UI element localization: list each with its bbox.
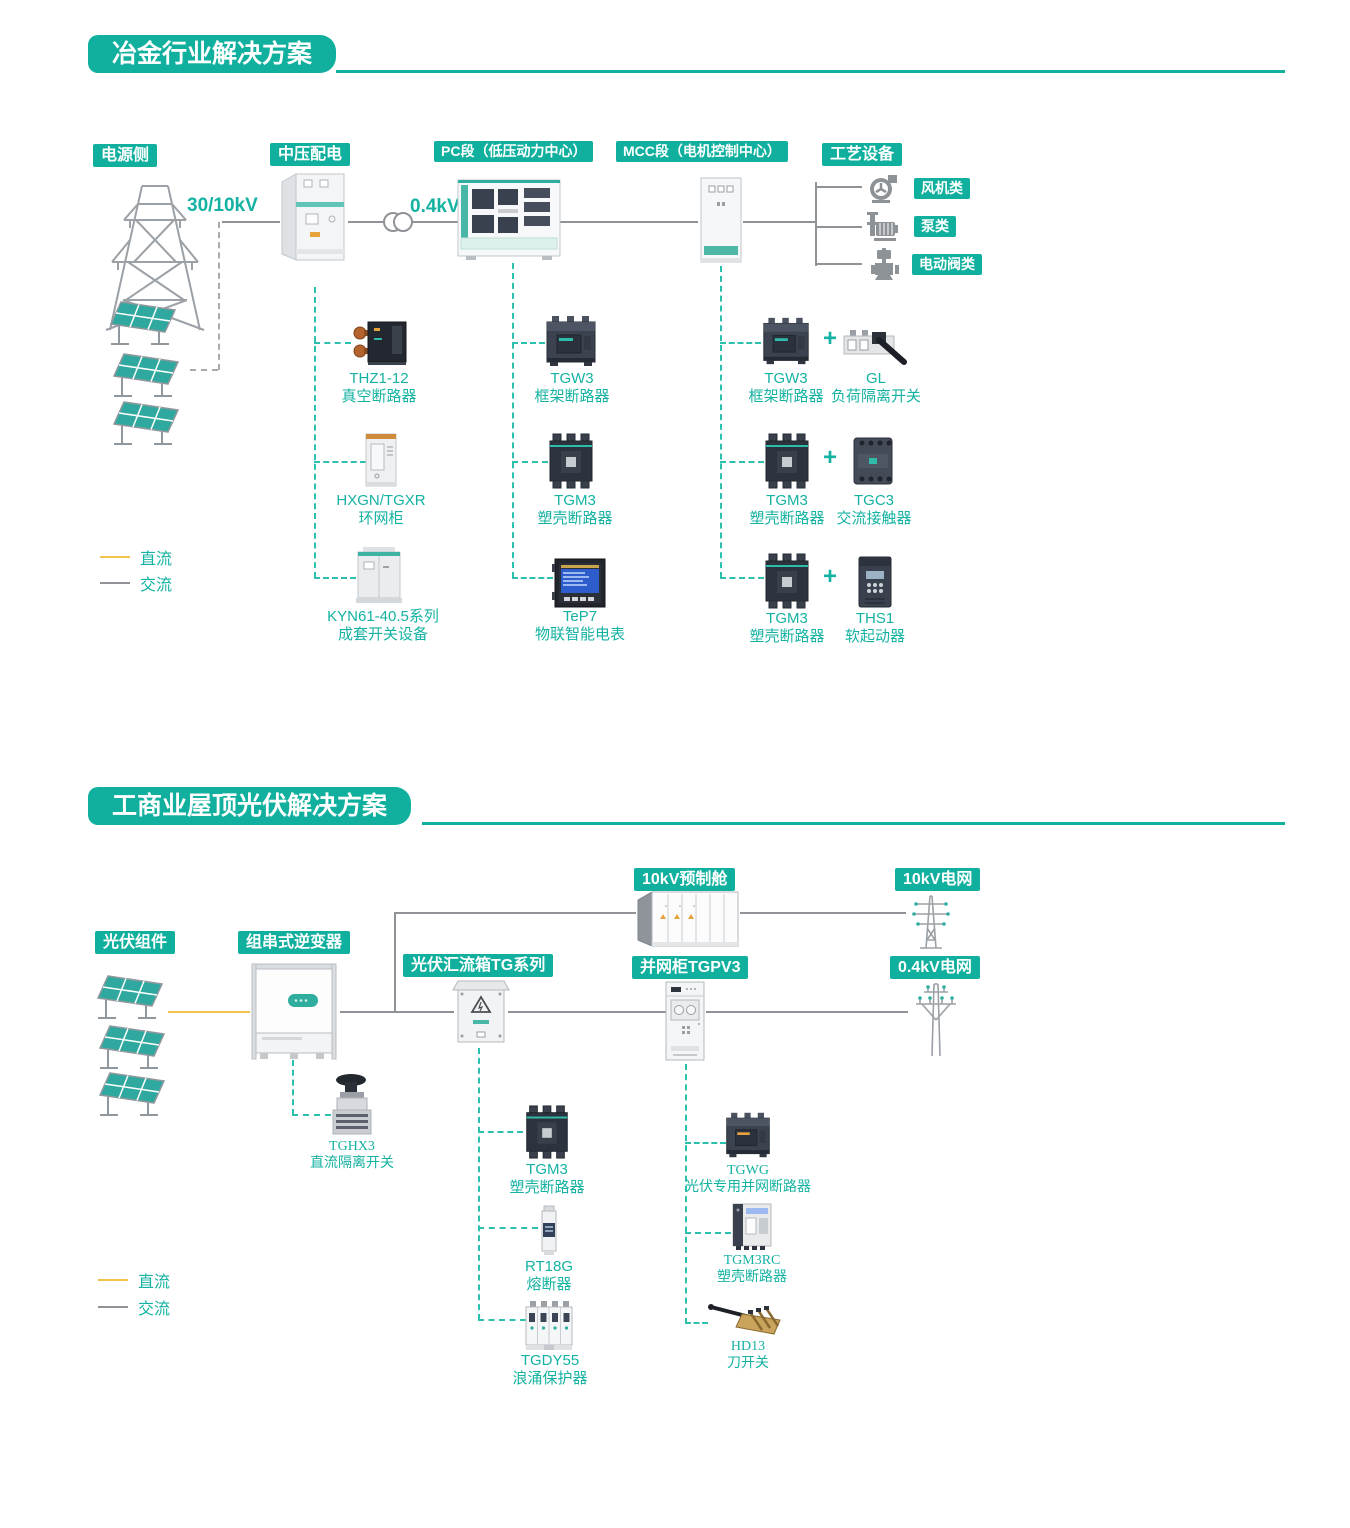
product-name: THS1: [845, 610, 905, 628]
badge-pc-section: PC段（低压动力中心）: [434, 141, 593, 162]
legend-ac: 交流: [98, 1297, 170, 1317]
ac-line: [706, 1011, 908, 1013]
solar-panel-icon: [108, 398, 182, 448]
product-label: KYN61-40.5系列 成套开关设备: [327, 608, 439, 644]
badge-04kv-grid: 0.4kV电网: [890, 956, 980, 979]
legend-dc-label: 直流: [138, 1268, 170, 1292]
pump-icon: [864, 210, 900, 244]
dashed-connector: [478, 1227, 538, 1229]
dashed-connector: [512, 577, 553, 579]
ac-line: [743, 221, 816, 223]
product-name: RT18G: [525, 1258, 573, 1276]
section1-underline: [336, 70, 1285, 73]
legend-ac-label: 交流: [140, 571, 172, 595]
tgc3-contactor-image: [850, 432, 896, 490]
product-desc: 成套开关设备: [327, 626, 439, 644]
dashed-connector: [720, 266, 722, 578]
product-name: TGM3RC: [717, 1252, 787, 1269]
grid-pole-icon: [910, 980, 962, 1060]
gl-switch-image: [842, 318, 908, 368]
product-label: TGW3 框架断路器: [534, 370, 609, 406]
fan-icon: [866, 172, 900, 204]
legend-dc-label: 直流: [140, 545, 172, 569]
product-name: TGM3: [509, 1161, 584, 1179]
load-stub-line: [815, 186, 862, 188]
product-label: RT18G 熔断器: [525, 1258, 573, 1294]
dc-line-swatch: [100, 556, 130, 558]
product-label: TGM3 塑壳断路器: [537, 492, 612, 528]
product-label: TGDY55 浪涌保护器: [512, 1352, 587, 1388]
dashed-connector: [685, 1322, 708, 1324]
tgw3-acb-image: [544, 314, 598, 368]
product-name: TGHX3: [310, 1138, 394, 1155]
legend-dc: 直流: [100, 547, 172, 567]
tgm3-mccb-image: [764, 432, 810, 490]
pc-cabinet-image: [456, 176, 562, 262]
ac-line: [412, 221, 460, 223]
hxgn-image: [364, 430, 398, 488]
product-desc: 软起动器: [845, 628, 905, 646]
product-desc: 直流隔离开关: [310, 1155, 394, 1172]
dashed-connector: [720, 461, 764, 463]
product-desc: 交流接触器: [836, 510, 911, 528]
voltage-label-lv: 0.4kV: [410, 196, 460, 218]
product-label: TGHX3 直流隔离开关: [310, 1138, 394, 1172]
badge-string-inverter: 组串式逆变器: [238, 931, 350, 954]
ac-line: [394, 912, 636, 914]
badge-tgpv3-cabinet: 并网柜TGPV3: [632, 956, 748, 979]
solar-panel-icon: [94, 1069, 168, 1119]
legend-dc: 直流: [98, 1270, 170, 1290]
prefab-cabin-image: [636, 886, 740, 950]
product-label: TGM3 塑壳断路器: [509, 1161, 584, 1197]
dashed-connector: [685, 1142, 726, 1144]
badge-pump-load: 泵类: [914, 216, 956, 237]
product-desc: 塑壳断路器: [717, 1269, 787, 1286]
load-stub-line: [815, 263, 862, 265]
product-desc: 光伏专用并网断路器: [685, 1179, 811, 1196]
mcc-cabinet-image: [697, 174, 745, 266]
dashed-connector: [512, 263, 514, 578]
product-name: KYN61-40.5系列: [327, 608, 439, 626]
product-name: TGW3: [748, 370, 823, 388]
product-desc: 熔断器: [525, 1276, 573, 1294]
product-name: TGM3: [749, 610, 824, 628]
kyn-cabinet-image: [355, 544, 403, 604]
product-label: HD13 刀开关: [727, 1338, 769, 1372]
ac-line: [222, 221, 280, 223]
product-name: HD13: [727, 1338, 769, 1355]
dashed-connector: [314, 287, 316, 578]
product-desc: 真空断路器: [341, 388, 416, 406]
thz1-12-image: [350, 318, 410, 366]
badge-fan-load: 风机类: [914, 178, 970, 199]
dashed-connector: [478, 1048, 480, 1320]
tgw3-acb-image: [761, 314, 811, 368]
product-desc: 塑壳断路器: [509, 1179, 584, 1197]
product-label: THS1 软起动器: [845, 610, 905, 646]
dashed-connector: [314, 461, 366, 463]
dashed-dc-feeder: [190, 369, 218, 371]
product-label: TGWG 光伏专用并网断路器: [685, 1162, 811, 1196]
product-desc: 环网柜: [336, 510, 425, 528]
solar-panel-icon: [92, 972, 166, 1022]
product-name: TGM3: [749, 492, 824, 510]
dc-line: [168, 1011, 250, 1013]
hd13-knife-switch-image: [706, 1300, 790, 1336]
product-label: TeP7 物联智能电表: [535, 608, 625, 644]
ac-line: [348, 221, 384, 223]
section1-title: 冶金行业解决方案: [88, 35, 336, 73]
tgm3-mccb-image: [522, 1104, 572, 1160]
ac-line-swatch: [100, 582, 130, 584]
product-label: TGM3RC 塑壳断路器: [717, 1252, 787, 1286]
dashed-connector: [314, 577, 356, 579]
tghx3-switch-image: [330, 1072, 374, 1138]
solar-panel-icon: [105, 298, 179, 348]
product-label: TGW3 框架断路器: [748, 370, 823, 406]
dashed-connector: [720, 342, 761, 344]
transformer-icon: [380, 209, 416, 235]
product-name: THZ1-12: [341, 370, 416, 388]
product-name: TGWG: [685, 1162, 811, 1179]
product-name: TGW3: [534, 370, 609, 388]
product-label: THZ1-12 真空断路器: [341, 370, 416, 406]
ac-line: [740, 912, 906, 914]
product-name: TeP7: [535, 608, 625, 626]
product-name: TGDY55: [512, 1352, 587, 1370]
tgm3-mccb-image: [548, 432, 594, 490]
tgdy55-spd-image: [524, 1300, 574, 1352]
product-desc: 塑壳断路器: [537, 510, 612, 528]
product-desc: 塑壳断路器: [749, 510, 824, 528]
dc-line-swatch: [98, 1279, 128, 1281]
product-desc: 物联智能电表: [535, 626, 625, 644]
product-label: TGM3 塑壳断路器: [749, 610, 824, 646]
product-desc: 框架断路器: [534, 388, 609, 406]
tep7-meter-image: [552, 556, 608, 610]
product-desc: 浪涌保护器: [512, 1370, 587, 1388]
tgwg-acb-image: [724, 1110, 772, 1160]
ac-line: [560, 221, 698, 223]
badge-valve-load: 电动阀类: [912, 254, 982, 275]
grid-tower-icon: [906, 888, 956, 952]
product-label: HXGN/TGXR 环网柜: [336, 492, 425, 528]
ac-line: [508, 1011, 666, 1013]
ac-line: [340, 1011, 454, 1013]
badge-mv-distribution: 中压配电: [270, 143, 350, 166]
product-label: GL 负荷隔离开关: [831, 370, 921, 406]
tgm3rc-mccb-image: [730, 1202, 774, 1250]
section2-title: 工商业屋顶光伏解决方案: [88, 787, 411, 825]
legend-ac-label: 交流: [138, 1295, 170, 1319]
badge-process-equipment: 工艺设备: [822, 143, 902, 166]
mv-cabinet-image: [276, 168, 350, 266]
solar-panel-icon: [108, 350, 182, 400]
product-label: TGM3 塑壳断路器: [749, 492, 824, 528]
dashed-connector: [292, 1060, 294, 1115]
plus-sign: +: [823, 325, 837, 353]
badge-mcc-section: MCC段（电机控制中心）: [616, 141, 788, 162]
section2-underline: [422, 822, 1285, 825]
badge-power-side: 电源侧: [93, 144, 157, 167]
product-desc: 刀开关: [727, 1355, 769, 1372]
product-name: TGC3: [836, 492, 911, 510]
dashed-connector: [512, 342, 545, 344]
product-desc: 负荷隔离开关: [831, 388, 921, 406]
dashed-connector: [478, 1319, 526, 1321]
valve-icon: [870, 248, 900, 282]
product-name: GL: [831, 370, 921, 388]
product-label: TGC3 交流接触器: [836, 492, 911, 528]
product-desc: 塑壳断路器: [749, 628, 824, 646]
tgm3-mccb-image: [764, 552, 810, 610]
plus-sign: +: [823, 563, 837, 591]
dashed-connector: [720, 577, 764, 579]
load-bracket-line: [815, 182, 817, 266]
tgpv3-cabinet-image: [663, 980, 707, 1064]
product-desc: 框架断路器: [748, 388, 823, 406]
ac-line-swatch: [98, 1306, 128, 1308]
product-name: TGM3: [537, 492, 612, 510]
dashed-connector: [314, 342, 351, 344]
plus-sign: +: [823, 444, 837, 472]
ths1-softstarter-image: [857, 554, 893, 610]
dashed-connector: [478, 1131, 523, 1133]
badge-combiner-box: 光伏汇流箱TG系列: [403, 954, 553, 977]
dashed-connector: [292, 1114, 331, 1116]
dashed-connector: [512, 461, 548, 463]
page: 冶金行业解决方案 电源侧 中压配电 PC段（低压动力中心） MCC段（电机控制中…: [0, 0, 1350, 1528]
combiner-box-image: [452, 978, 510, 1048]
solar-panel-icon: [94, 1022, 168, 1072]
load-stub-line: [815, 226, 862, 228]
legend-ac: 交流: [100, 573, 172, 593]
rt18g-fuse-image: [537, 1204, 561, 1256]
product-name: HXGN/TGXR: [336, 492, 425, 510]
badge-pv-modules: 光伏组件: [95, 931, 175, 954]
string-inverter-image: [248, 962, 340, 1062]
ac-riser-line: [394, 912, 396, 1013]
dashed-connector: [685, 1232, 731, 1234]
